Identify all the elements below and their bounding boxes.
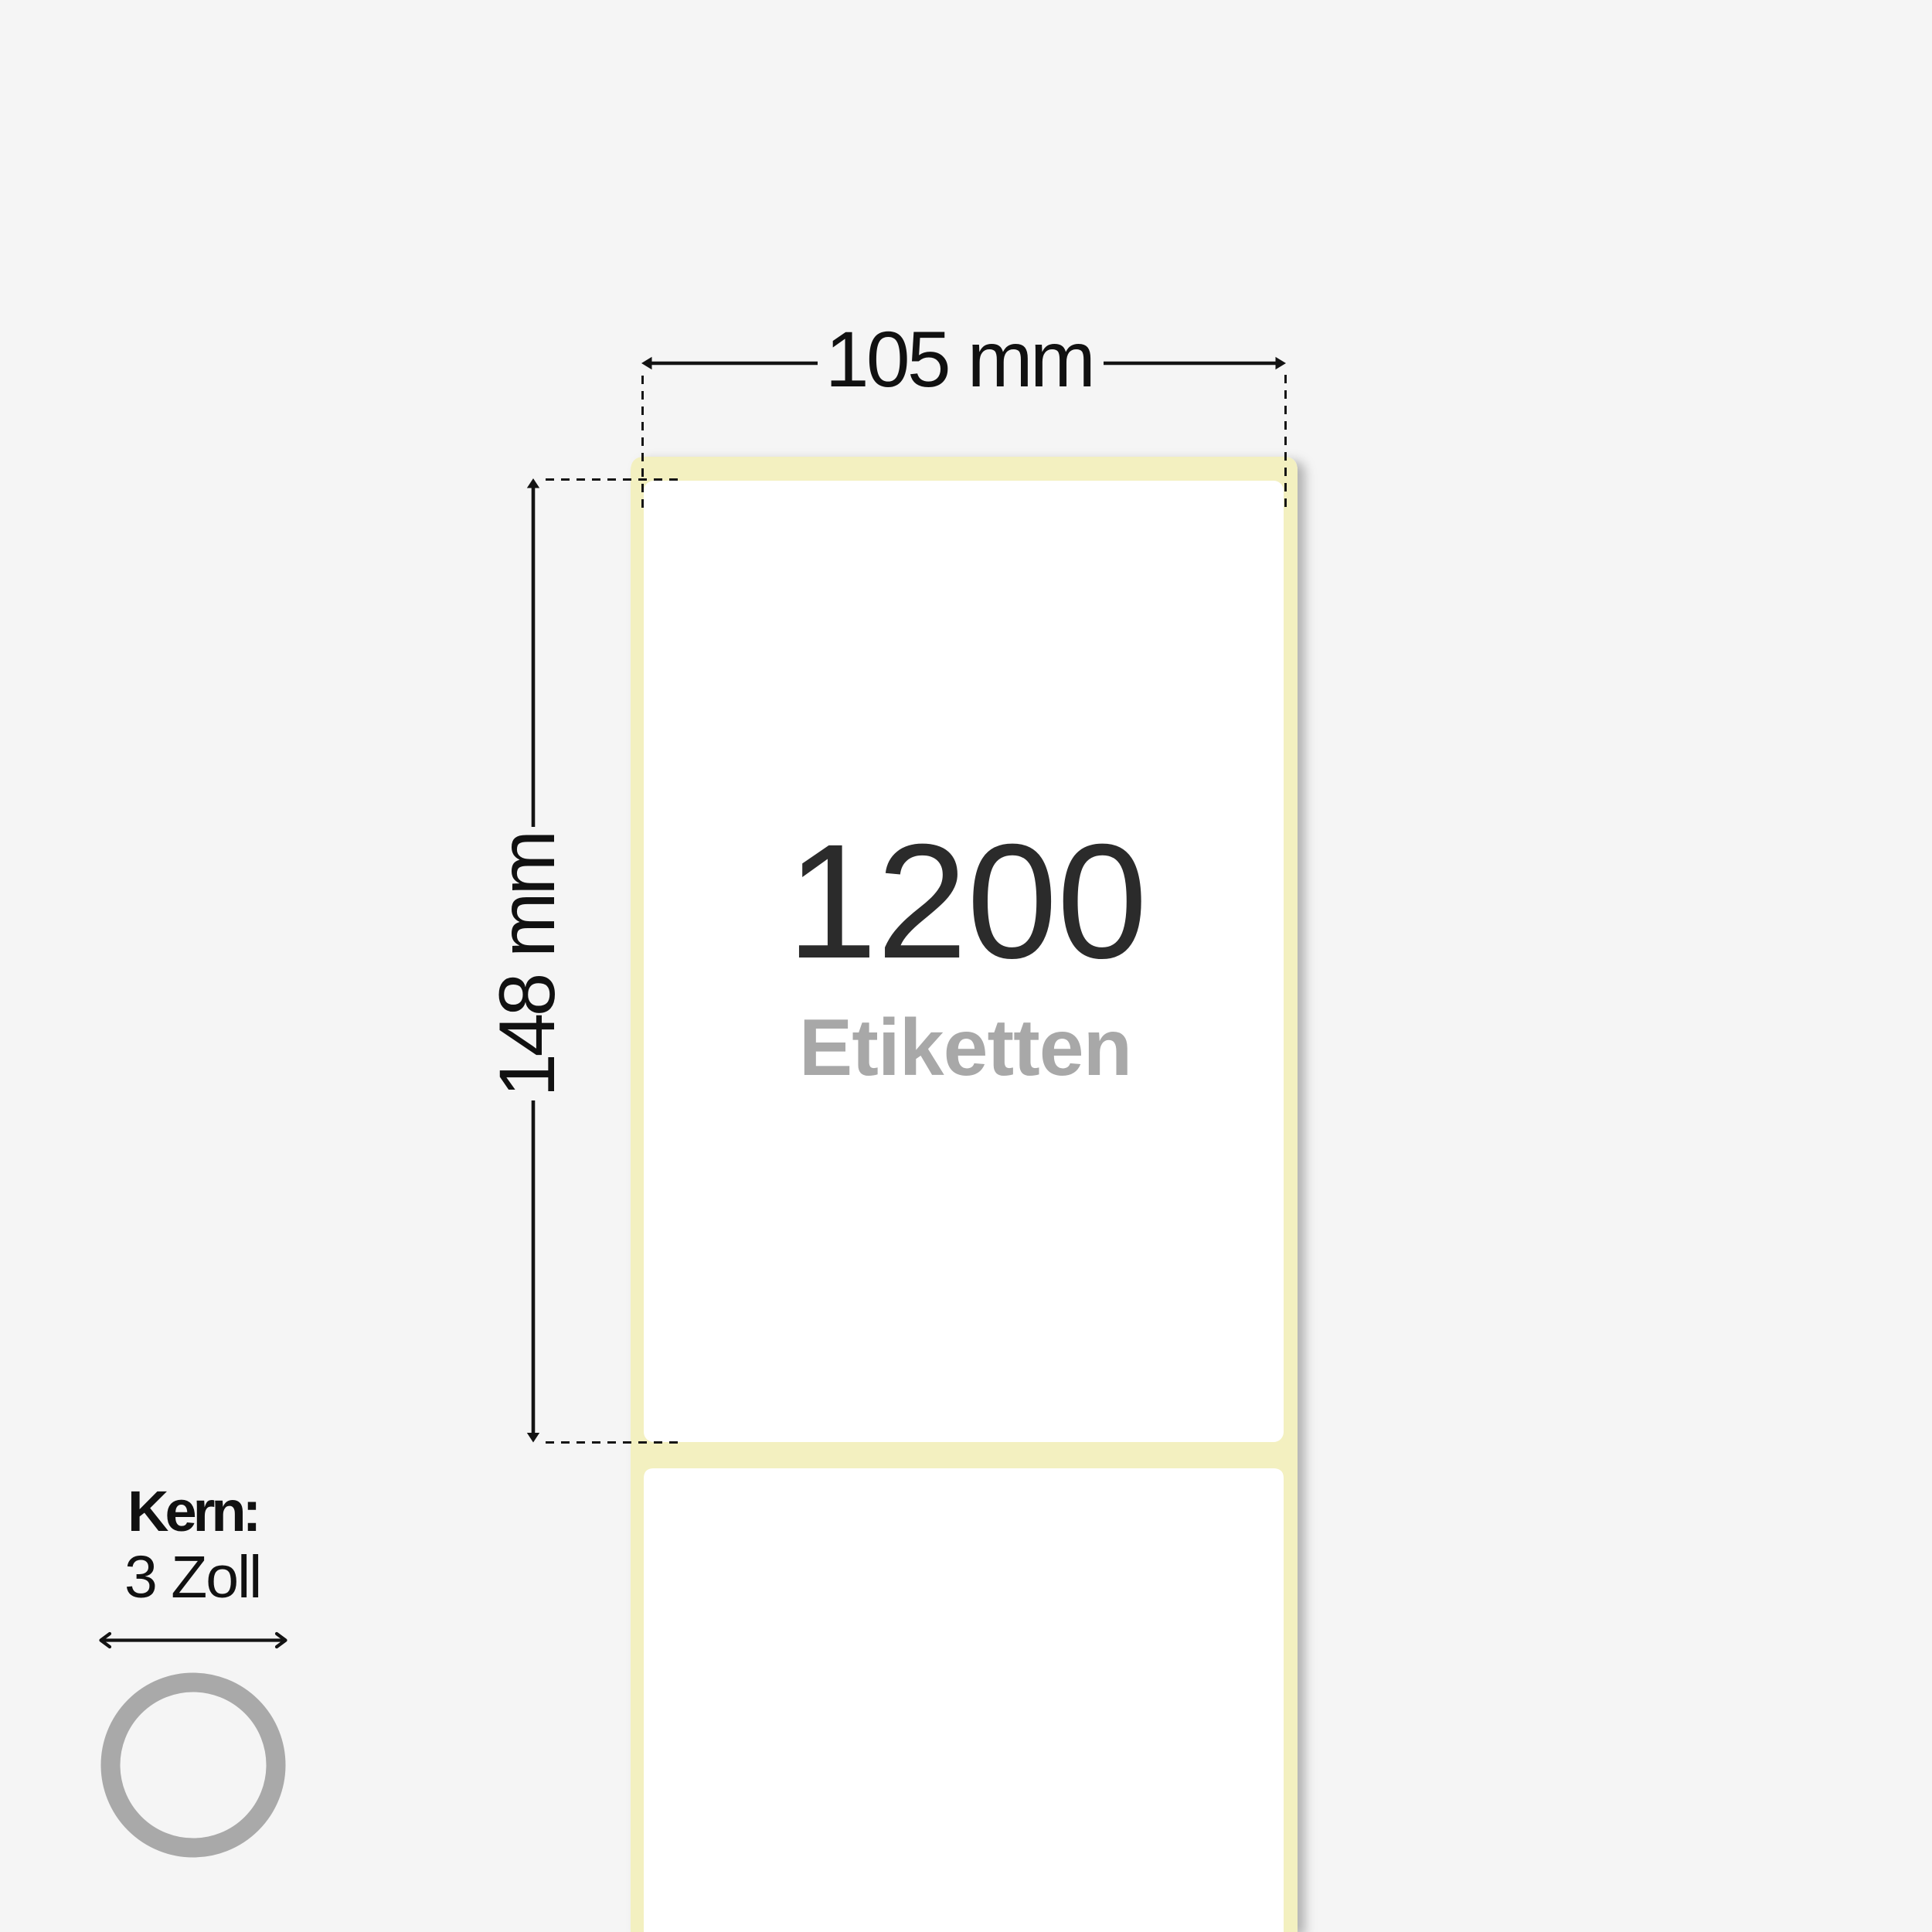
svg-text:Kern:: Kern: xyxy=(128,1479,257,1543)
svg-text:1200: 1200 xyxy=(787,810,1147,992)
svg-text:105 mm: 105 mm xyxy=(825,315,1093,403)
svg-text:Etiketten: Etiketten xyxy=(799,1003,1131,1093)
svg-text:148 mm: 148 mm xyxy=(483,833,571,1097)
svg-text:3 Zoll: 3 Zoll xyxy=(124,1544,260,1611)
